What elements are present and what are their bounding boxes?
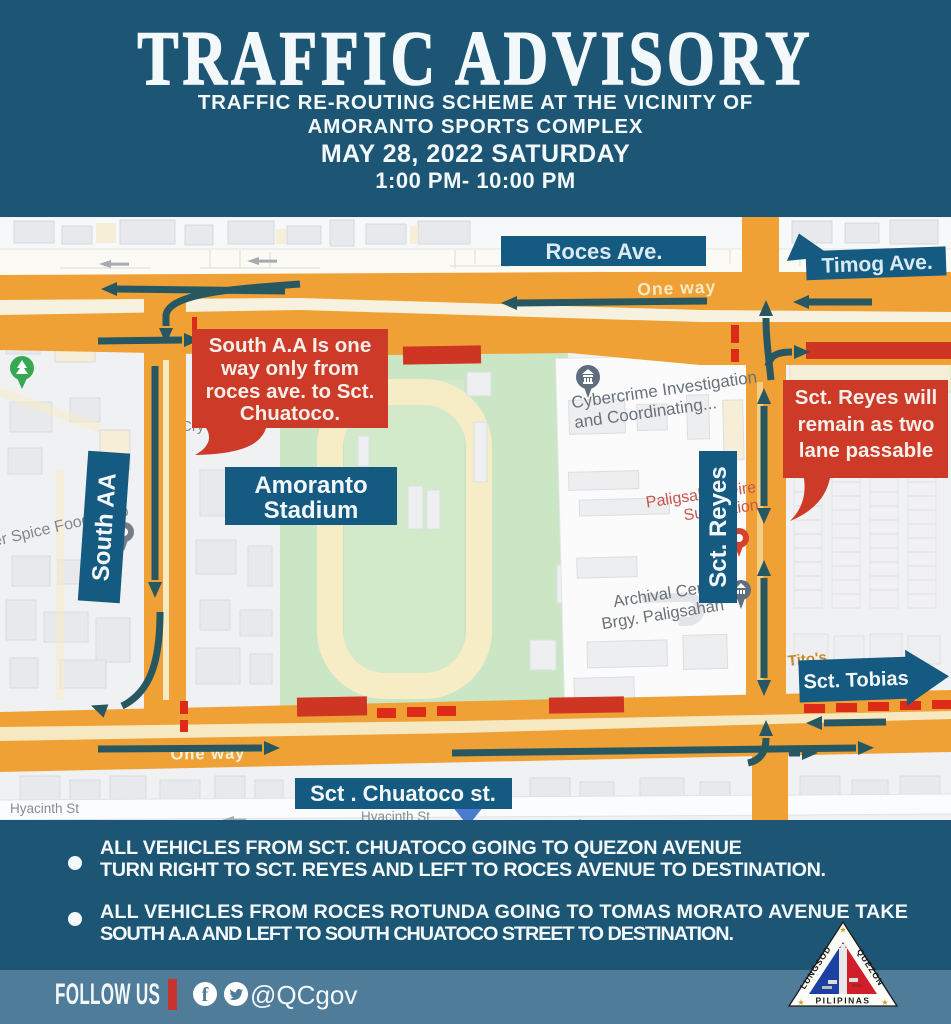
svg-text:Hyacinth St: Hyacinth St — [361, 809, 430, 820]
svg-text:roces ave. to Sct.: roces ave. to Sct. — [206, 380, 375, 403]
svg-text:lane passable: lane passable — [799, 439, 933, 462]
svg-text:★: ★ — [797, 998, 804, 1007]
svg-text:Timog Ave.: Timog Ave. — [821, 251, 933, 278]
svg-text:Stadium: Stadium — [264, 497, 359, 524]
svg-text:Sct. Reyes will: Sct. Reyes will — [795, 386, 937, 409]
svg-text:Roces Ave.: Roces Ave. — [546, 239, 663, 264]
svg-text:PILIPINAS: PILIPINAS — [815, 996, 870, 1006]
svg-text:One way: One way — [637, 277, 717, 300]
svg-text:Sct. Reyes: Sct. Reyes — [705, 466, 732, 587]
svg-text:★: ★ — [881, 998, 888, 1007]
svg-text:Chuatoco.: Chuatoco. — [240, 402, 340, 425]
svg-text:Amoranto: Amoranto — [254, 472, 367, 499]
svg-text:remain as two: remain as two — [798, 413, 935, 436]
svg-text:Hyacinth St: Hyacinth St — [10, 801, 79, 816]
svg-text:Sct . Chuatoco st.: Sct . Chuatoco st. — [310, 781, 496, 806]
svg-text:way only from: way only from — [220, 357, 359, 380]
svg-text:South A.A Is one: South A.A Is one — [209, 334, 371, 357]
svg-text:Sct. Tobias: Sct. Tobias — [803, 668, 909, 694]
svg-text:★: ★ — [839, 926, 846, 935]
